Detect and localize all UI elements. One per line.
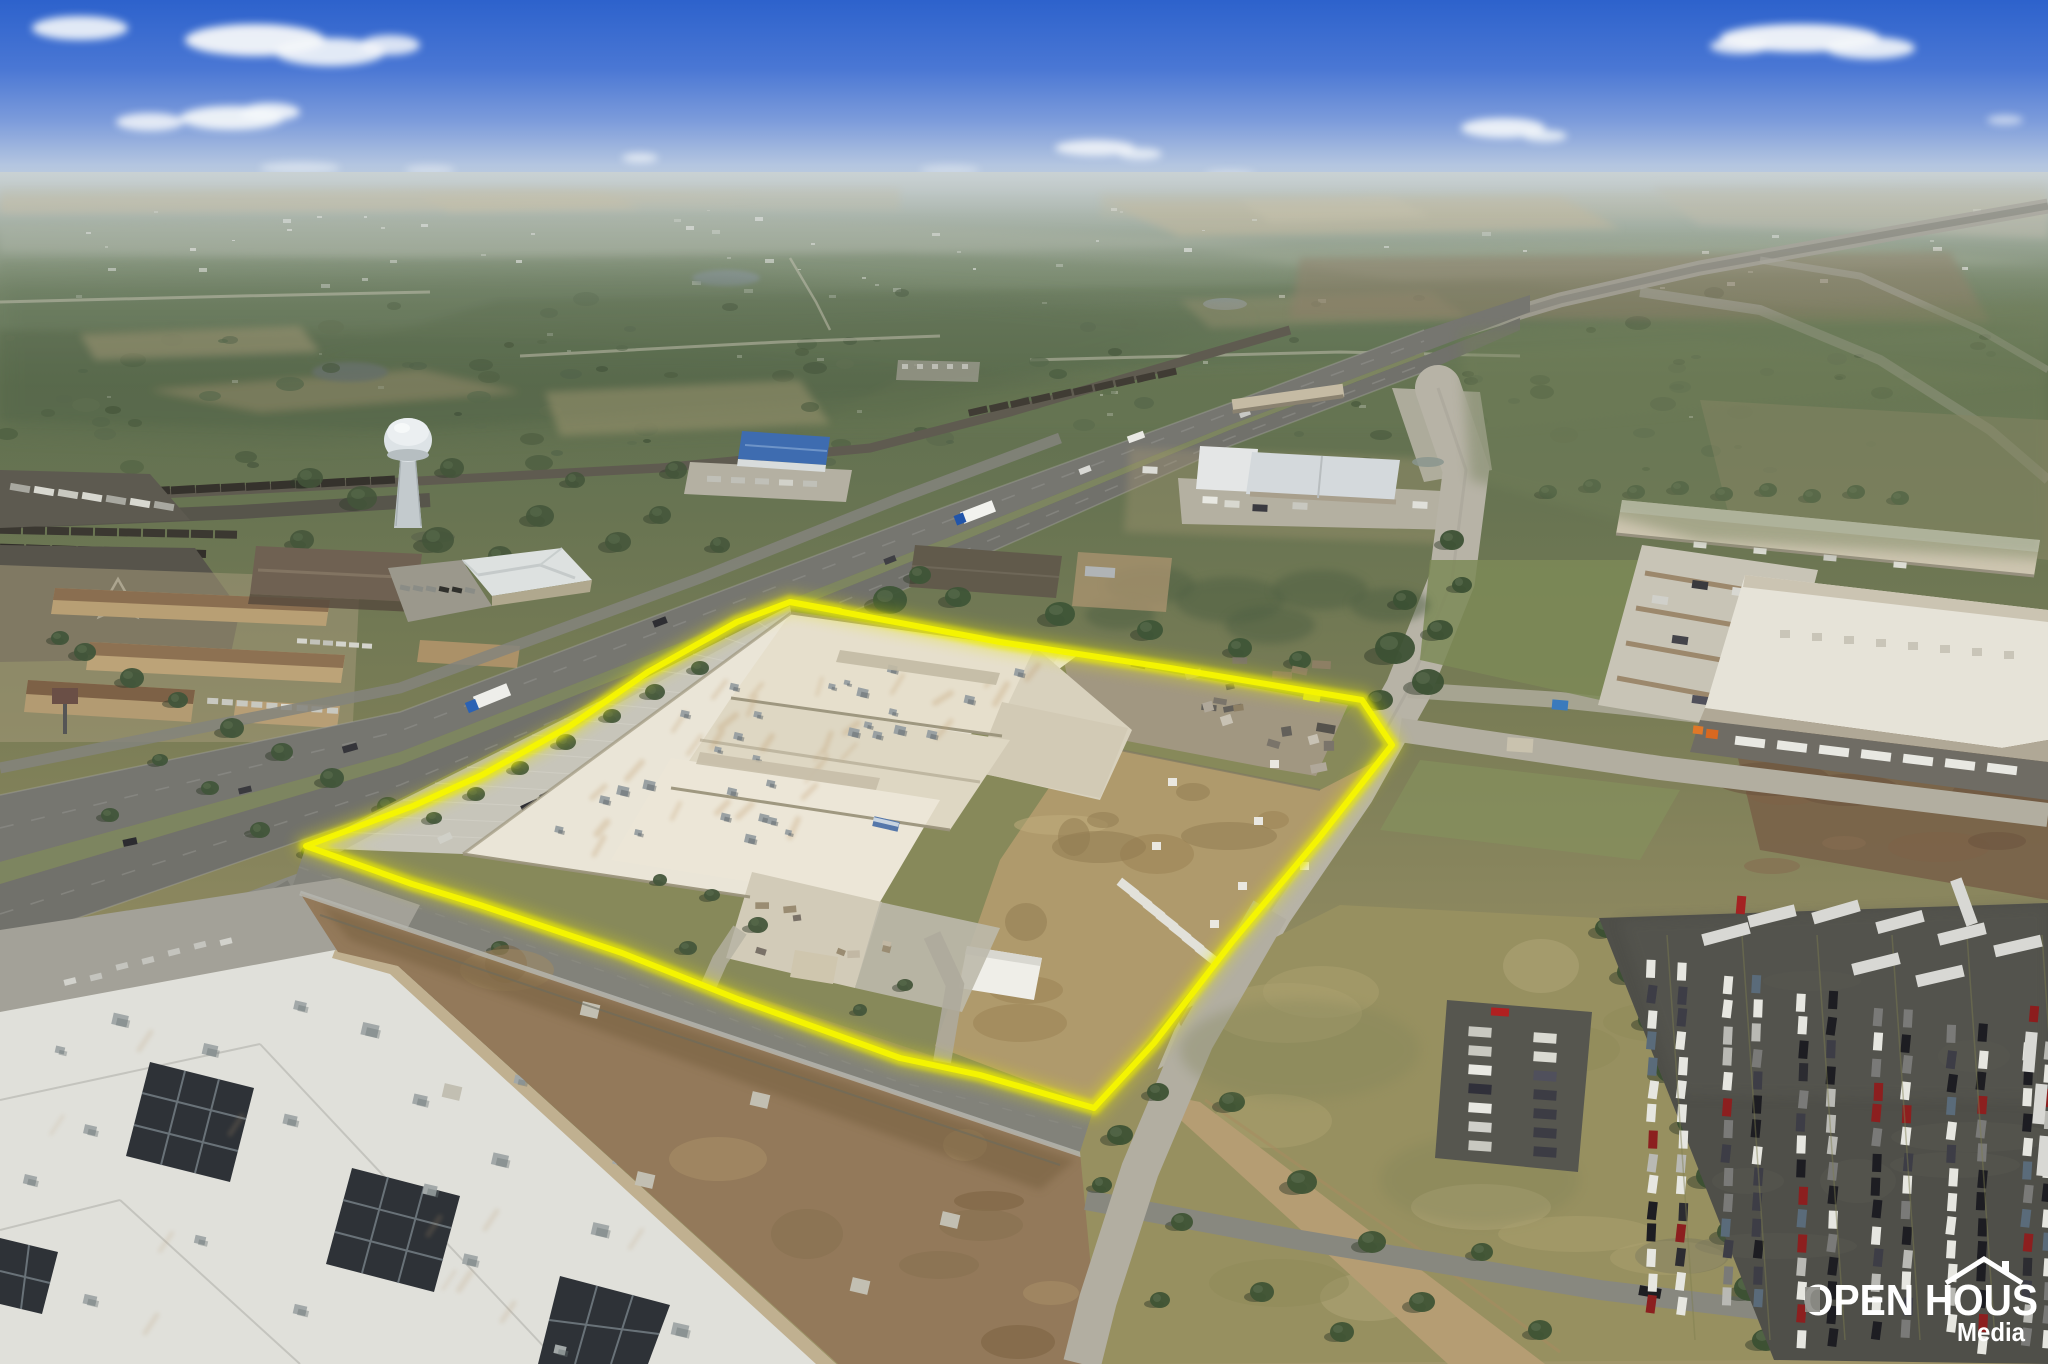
svg-text:Media: Media	[1957, 1317, 2025, 1347]
